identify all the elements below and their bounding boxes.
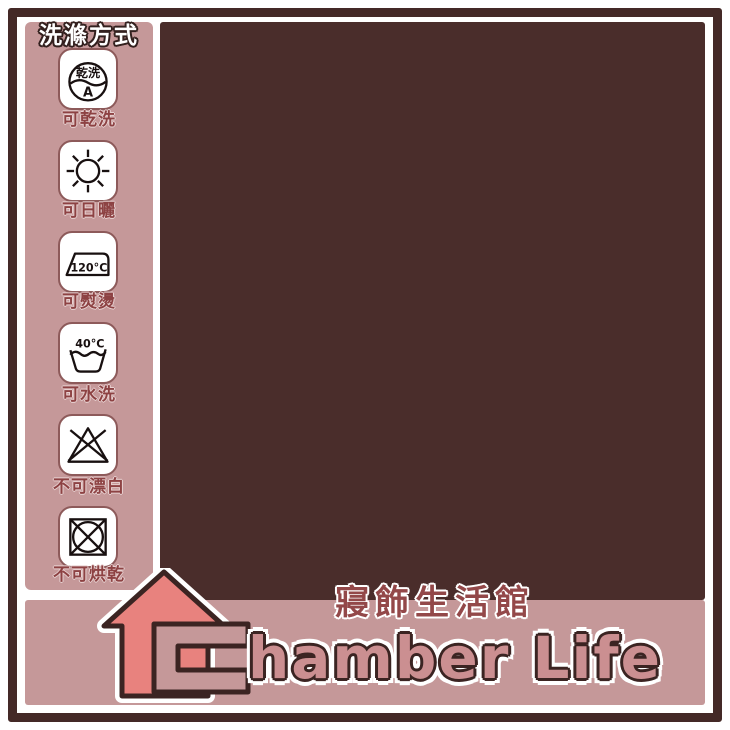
hand-wash-icon: 40°C xyxy=(58,322,118,384)
care-label: 可熨燙 xyxy=(25,294,153,312)
no-bleach-icon xyxy=(58,414,118,476)
house-logo-icon xyxy=(96,568,256,704)
sidebar-title: 洗滌方式 xyxy=(25,24,153,48)
care-label: 可日曬 xyxy=(25,203,153,221)
brand-tagline: 寢飾生活館 xyxy=(295,586,575,622)
care-label: 不可漂白 xyxy=(25,479,153,497)
svg-text:120°C: 120°C xyxy=(70,261,107,274)
brand-wordmark: hamber Life xyxy=(248,628,662,689)
svg-text:40°C: 40°C xyxy=(75,337,104,350)
care-label: 可乾洗 xyxy=(25,112,153,130)
main-panel xyxy=(160,22,705,600)
svg-text:A: A xyxy=(83,86,93,101)
poster: 洗滌方式 乾洗 A 可乾洗 可日曬 xyxy=(0,0,730,730)
sun-dry-icon xyxy=(58,140,118,202)
svg-text:乾洗: 乾洗 xyxy=(76,65,101,80)
no-tumble-dry-icon xyxy=(58,506,118,568)
wash-care-sidebar: 洗滌方式 乾洗 A 可乾洗 可日曬 xyxy=(25,22,153,590)
care-label: 可水洗 xyxy=(25,387,153,405)
iron-icon: 120°C xyxy=(58,231,118,293)
dry-clean-icon: 乾洗 A xyxy=(58,48,118,110)
